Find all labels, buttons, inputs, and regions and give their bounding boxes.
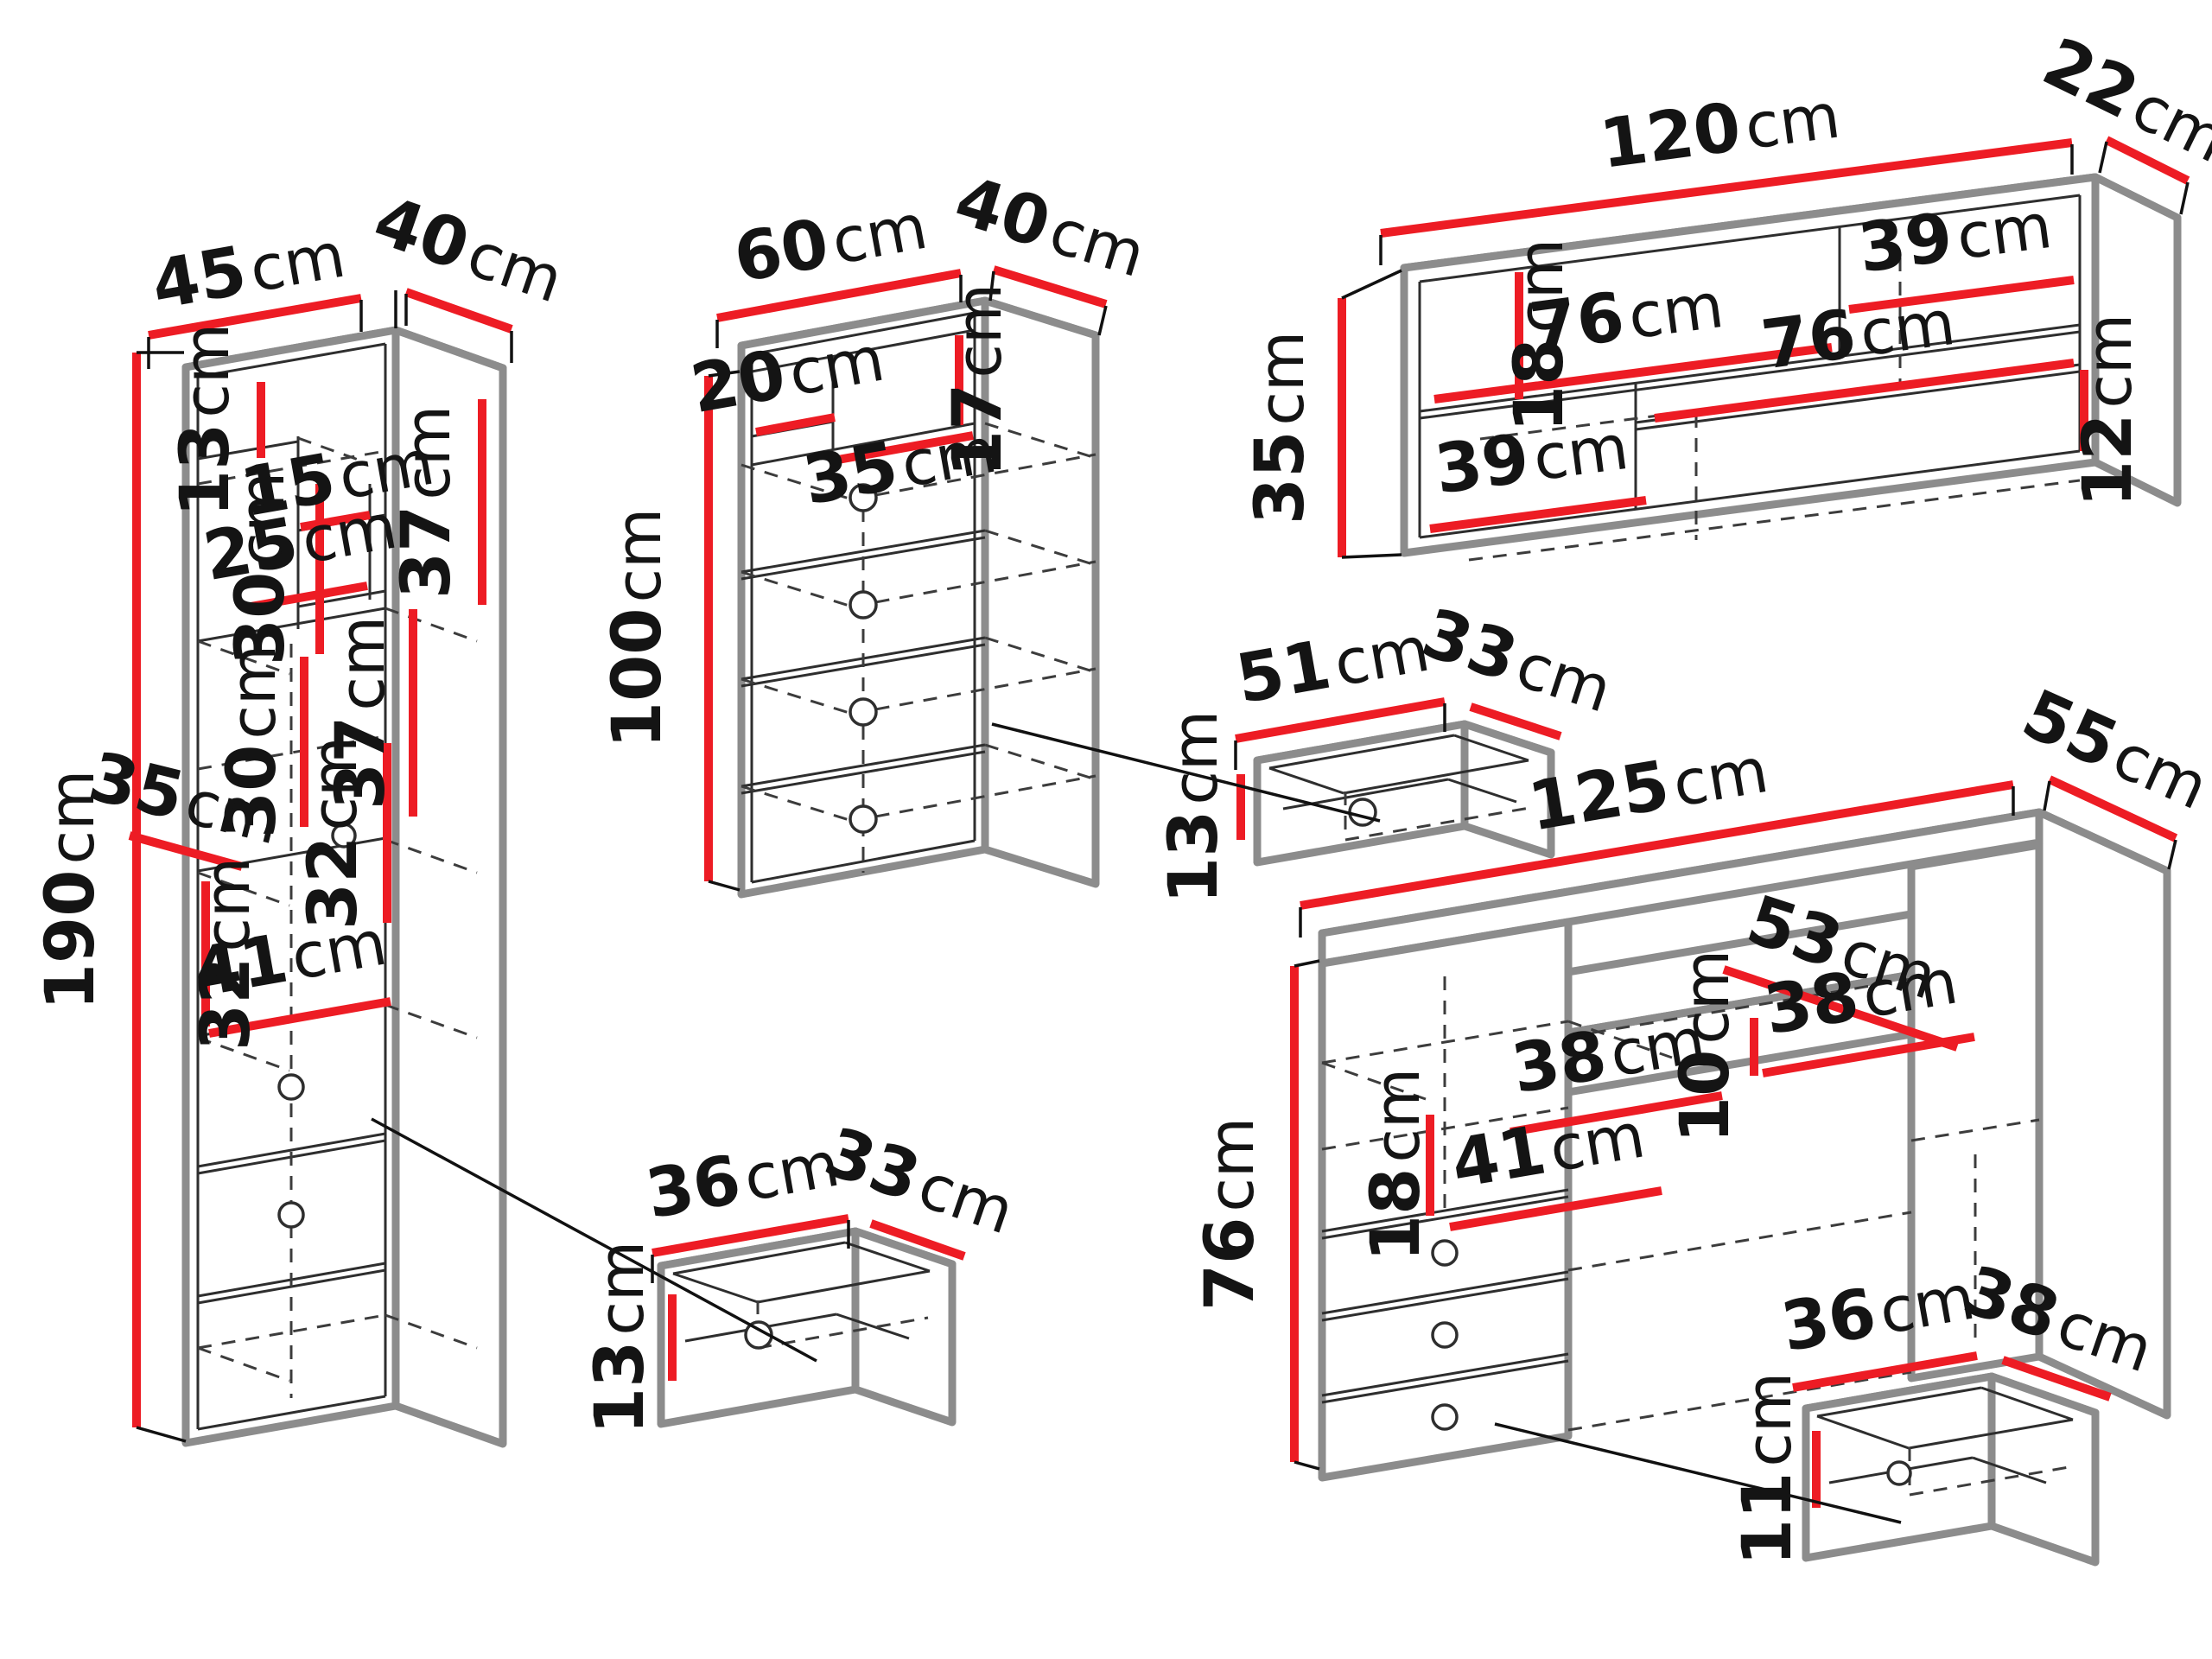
drawer-knob [279, 1203, 303, 1227]
drawer-knob [1433, 1323, 1457, 1347]
drawer-knob [1433, 1405, 1457, 1429]
drawer-knob [279, 1075, 303, 1099]
dim-chest-height: 100cm [599, 508, 677, 749]
drawer-knob [1350, 799, 1376, 825]
drawer-knob [1433, 1241, 1457, 1265]
diagram-canvas: 45cm 40cm 190cm 13cm 37cm 30cm 15cm 25cm… [0, 0, 2212, 1659]
furniture-dimension-diagram: 45cm 40cm 190cm 13cm 37cm 30cm 15cm 25cm… [0, 0, 2212, 1659]
drawer-knob [850, 699, 876, 725]
drawer-knob [850, 806, 876, 832]
drawer-knob [1888, 1462, 1910, 1484]
drawer-knob [850, 592, 876, 618]
